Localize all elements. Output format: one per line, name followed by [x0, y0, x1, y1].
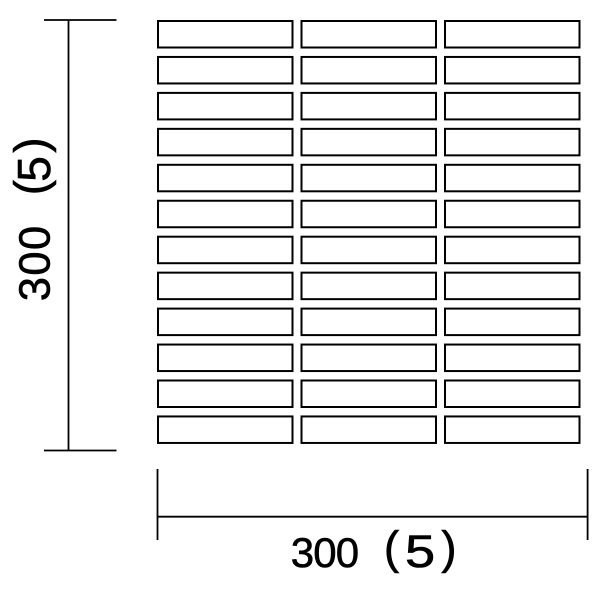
svg-text:300: 300: [291, 529, 359, 576]
svg-text:5: 5: [8, 156, 60, 182]
svg-text:300: 300: [12, 224, 60, 301]
svg-text:(: (: [384, 521, 400, 573]
svg-text:): ): [441, 521, 456, 573]
svg-text:): ): [5, 137, 57, 152]
svg-text:5: 5: [405, 526, 435, 577]
